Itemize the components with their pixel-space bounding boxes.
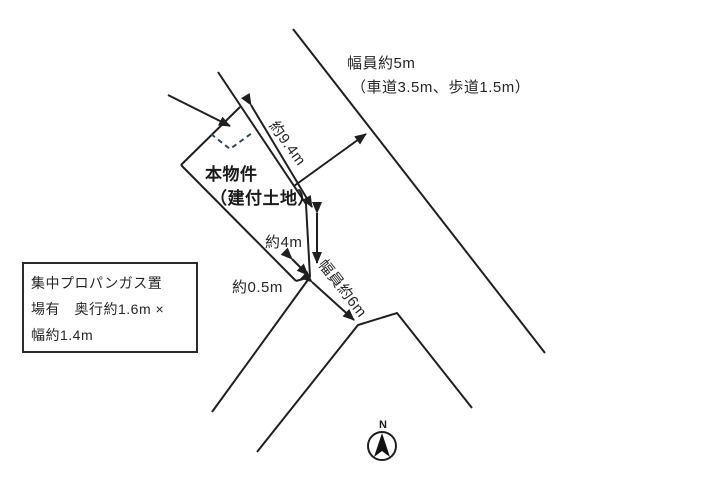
road-6m-southeast-edge-line (257, 313, 472, 452)
propane-note-box: 集中プロパンガス置 場有 奥行約1.6m × 幅約1.4m (22, 262, 198, 353)
propane-note-line2: 場有 奥行約1.6m × (31, 296, 196, 322)
propane-pointer-arrow (168, 95, 230, 126)
propane-area-dashed-outline (211, 133, 252, 149)
propane-note-line1: 集中プロパンガス置 (31, 270, 196, 296)
road-6m-northwest-edge-line (212, 277, 310, 412)
property-type-label: （建付土地） (210, 184, 315, 209)
setback-0-5m-arrow (292, 259, 308, 275)
property-name-label: 本物件 (205, 160, 258, 185)
road-5m-detail-label: （車道3.5m、歩道1.5m） (351, 76, 530, 97)
road-5m-width-label: 幅員約5m (347, 52, 415, 73)
site-plan-diagram: 幅員約5m （車道3.5m、歩道1.5m） 本物件 （建付土地） 約9.4m 約… (0, 0, 720, 480)
side-4m-label: 約4m (265, 231, 302, 252)
north-compass (368, 432, 396, 460)
compass-north-label: N (379, 419, 387, 431)
propane-note-line3: 幅約1.4m (31, 322, 196, 348)
setback-0-5m-label: 約0.5m (232, 276, 283, 297)
